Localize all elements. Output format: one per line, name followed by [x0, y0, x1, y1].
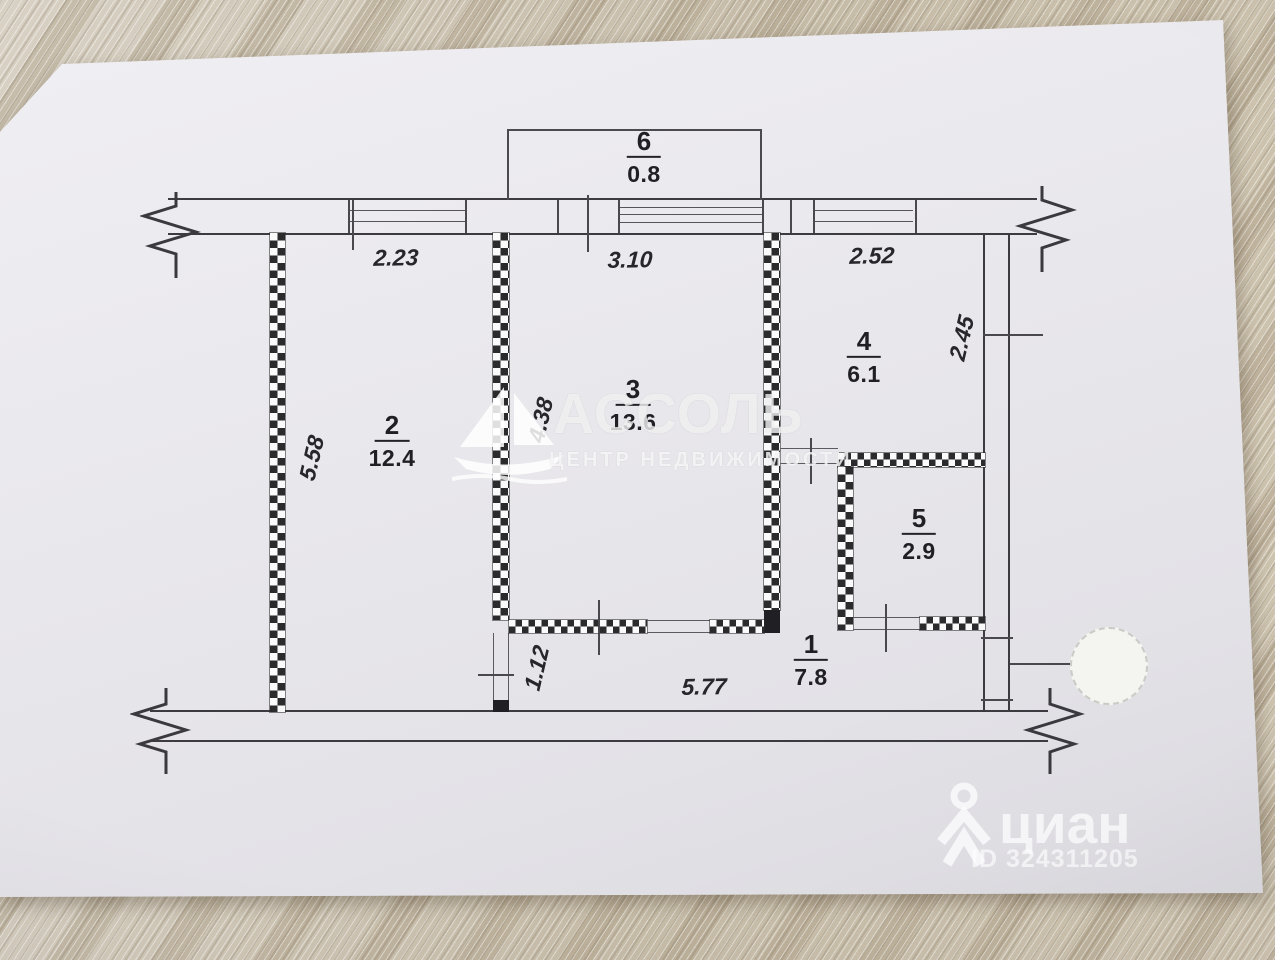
dimension-tick [352, 200, 354, 250]
wall-pier [493, 700, 509, 712]
dimension-tick [598, 600, 600, 655]
window-room3 [620, 207, 762, 208]
wall-break-icon [1008, 184, 1078, 274]
window-room3 [620, 222, 762, 223]
room-label-1: 1 7.8 [794, 631, 828, 691]
entrance-door-leaf [1010, 663, 1070, 665]
window-room3 [620, 214, 762, 215]
room-number: 1 [794, 631, 828, 661]
window-room4 [815, 210, 913, 211]
room-label-2: 2 12.4 [369, 412, 416, 472]
room-label-5: 5 2.9 [902, 505, 936, 565]
dimension-tick [983, 334, 1043, 336]
wall-left-partition [270, 233, 285, 712]
door-opening-room3 [647, 620, 710, 633]
room-area: 2.9 [902, 535, 935, 565]
wall-room5-left [838, 467, 853, 630]
room-number: 4 [847, 328, 881, 358]
wall-joint [790, 200, 792, 233]
wall-top-exterior [168, 198, 1037, 235]
dimension-hall-depth: 1.12 [519, 642, 555, 694]
wall-break-icon [1016, 686, 1086, 776]
wall-joint [348, 200, 350, 233]
dimension-tick [587, 195, 589, 252]
wall-room3-hall [710, 620, 764, 633]
dimension-room2-depth: 5.58 [294, 432, 330, 484]
room-area: 0.8 [627, 158, 660, 188]
agency-watermark: АССОЛЬ [553, 381, 804, 447]
wall-room5-bottom [920, 617, 985, 630]
dimension-tick [885, 604, 887, 652]
room-number: 6 [627, 128, 661, 158]
room-area: 6.1 [847, 358, 880, 388]
portal-id-watermark: ID 324311205 [971, 845, 1139, 874]
wall-joint [465, 200, 467, 233]
window-room2 [350, 221, 465, 222]
wall-joint [618, 200, 620, 233]
room-label-6-balcony: 6 0.8 [627, 128, 661, 188]
window-room2 [350, 210, 465, 211]
wall-joint [762, 200, 764, 233]
wall-joint [813, 200, 815, 233]
room-label-4: 4 6.1 [847, 328, 881, 388]
room-area: 12.4 [369, 442, 416, 472]
dimension-room4-width: 2.52 [849, 242, 895, 270]
wall-break-icon [140, 190, 210, 280]
dimension-right-side: 2.45 [944, 312, 980, 364]
entrance-jamb [981, 699, 1013, 701]
wall-room5-top [838, 453, 985, 467]
room-number: 2 [375, 412, 409, 442]
wall-right-exterior [983, 233, 1010, 712]
window-room4 [815, 221, 913, 222]
entrance-jamb [981, 637, 1013, 639]
room-area: 7.8 [794, 661, 827, 691]
agency-tagline-watermark: ЦЕНТР НЕДВИЖИМОСТИ [549, 449, 853, 472]
paper-sheet: 1 7.8 2 12.4 3 13.6 4 6.1 5 2.9 6 0.8 [0, 0, 1275, 960]
wall-joint [557, 200, 559, 233]
wall-bottom-exterior [150, 710, 1048, 742]
door-opening-room2 [493, 633, 509, 702]
wall-pier [764, 610, 780, 633]
paper-sheet-shadow: 1 7.8 2 12.4 3 13.6 4 6.1 5 2.9 6 0.8 [0, 0, 1275, 960]
dimension-tick [478, 674, 514, 676]
dimension-hall-width: 5.77 [681, 673, 727, 701]
wall-joint [915, 200, 917, 233]
dimension-room3-width: 3.10 [607, 246, 653, 274]
dimension-room2-width: 2.23 [373, 244, 419, 272]
wall-room3-hall [509, 620, 647, 633]
wall-break-icon [130, 686, 200, 776]
whiteout-circle [1070, 627, 1148, 705]
room-number: 5 [902, 505, 936, 535]
photo-of-floor-plan: 1 7.8 2 12.4 3 13.6 4 6.1 5 2.9 6 0.8 [0, 0, 1275, 960]
